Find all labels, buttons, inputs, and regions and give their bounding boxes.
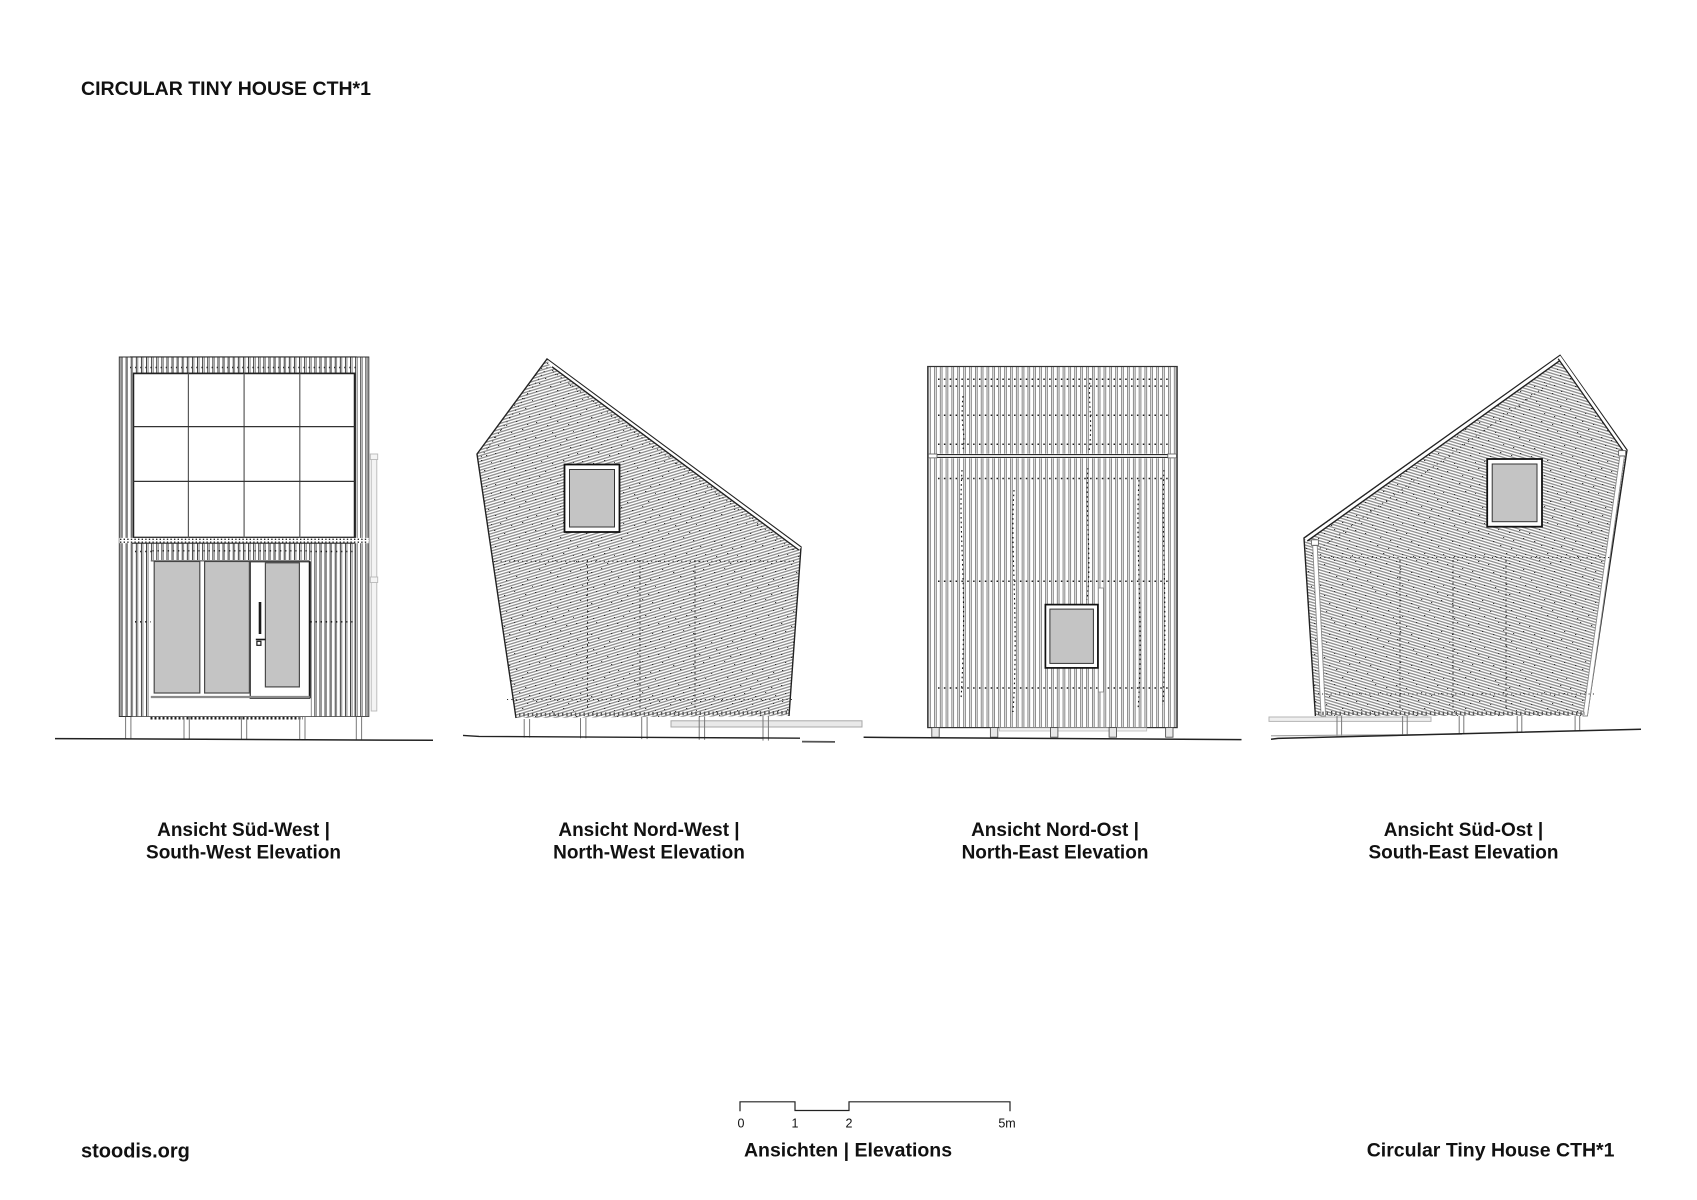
svg-text:Circular Tiny House CTH*1: Circular Tiny House CTH*1 (1367, 1140, 1615, 1162)
svg-text:Ansicht Süd-West |: Ansicht Süd-West | (157, 820, 330, 841)
svg-text:stoodis.org: stoodis.org (81, 1141, 190, 1163)
svg-text:North-East Elevation: North-East Elevation (962, 843, 1149, 864)
svg-text:CIRCULAR TINY HOUSE CTH*1: CIRCULAR TINY HOUSE CTH*1 (81, 78, 371, 100)
svg-text:5m: 5m (998, 1117, 1015, 1131)
svg-text:0: 0 (738, 1117, 745, 1131)
svg-text:2: 2 (846, 1117, 853, 1131)
svg-text:South-East Elevation: South-East Elevation (1368, 843, 1558, 864)
svg-text:Ansichten | Elevations: Ansichten | Elevations (744, 1140, 952, 1162)
svg-text:Ansicht Süd-Ost |: Ansicht Süd-Ost | (1384, 820, 1543, 841)
svg-text:North-West Elevation: North-West Elevation (553, 843, 745, 864)
svg-text:1: 1 (792, 1117, 799, 1131)
svg-text:South-West Elevation: South-West Elevation (146, 843, 341, 864)
svg-text:Ansicht Nord-West |: Ansicht Nord-West | (558, 820, 739, 841)
svg-text:Ansicht Nord-Ost |: Ansicht Nord-Ost | (971, 820, 1139, 841)
